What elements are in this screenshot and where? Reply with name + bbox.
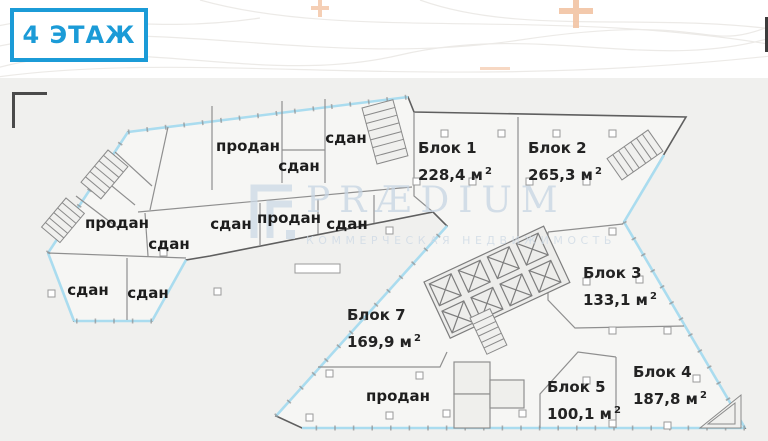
screenshot-root: 4 ЭТАЖ <box>0 0 768 441</box>
floor-plan-svg <box>0 0 768 441</box>
